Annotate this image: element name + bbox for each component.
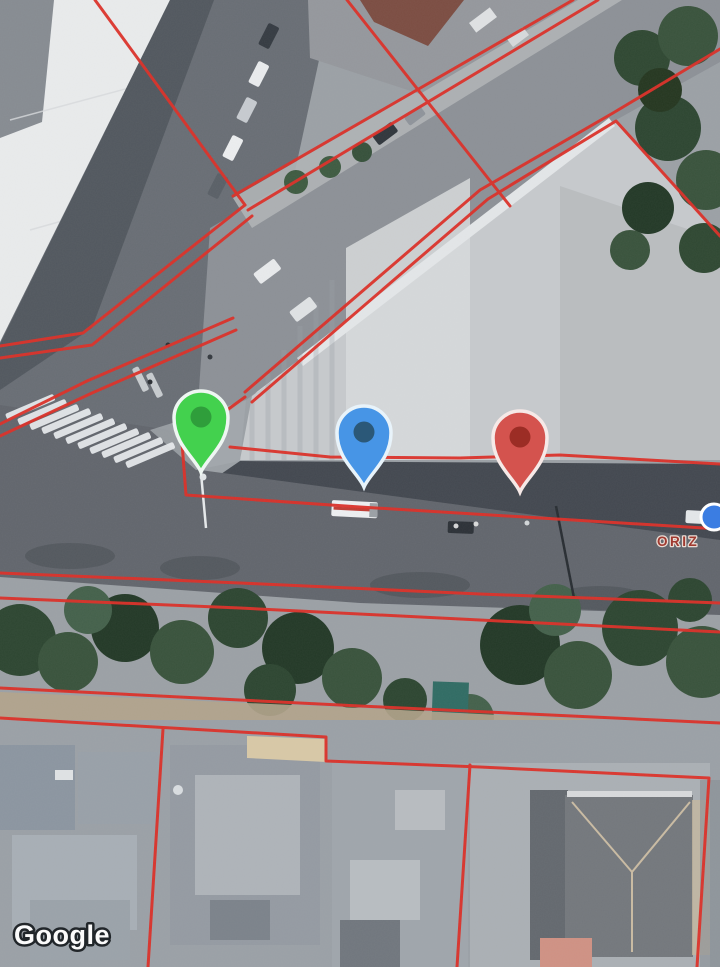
green-pin-dot — [191, 407, 212, 428]
map-viewport[interactable]: ORIZ Google — [0, 0, 720, 967]
svg-text:ORIZ: ORIZ — [657, 534, 699, 549]
poi-label[interactable]: ORIZ — [657, 534, 699, 549]
svg-text:Google: Google — [14, 920, 110, 950]
blue-pin-dot — [354, 422, 375, 443]
google-logo: Google — [14, 920, 110, 950]
photo-grain — [0, 0, 720, 967]
red-pin-dot — [510, 427, 531, 448]
blue-dot-marker[interactable] — [701, 504, 720, 530]
satellite-map[interactable]: ORIZ Google — [0, 0, 720, 967]
